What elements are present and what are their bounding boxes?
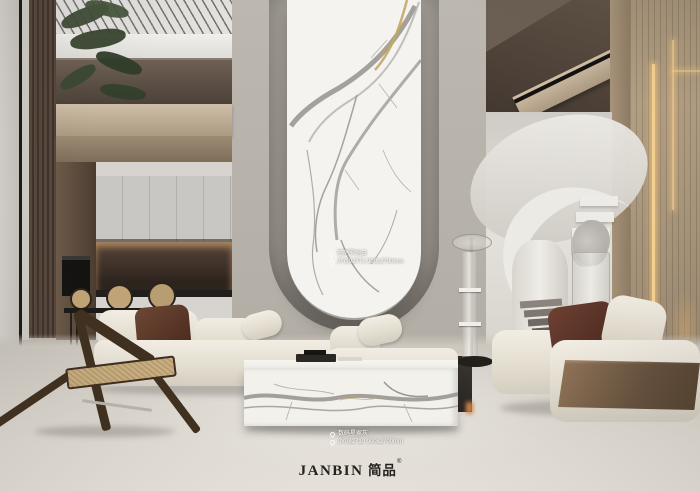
location-pin-icon (329, 430, 336, 437)
floor-lamp-ring (459, 288, 481, 292)
stair-ledge (576, 212, 614, 222)
floor-lamp-base (457, 356, 493, 367)
slab-code: JY082710 900x2700mm (338, 438, 403, 446)
location-pin-icon (328, 250, 335, 257)
marble-feature-slab: 巴萨罗纳白 JYG92771 900x2700mm (287, 0, 421, 320)
led-light-strip (672, 40, 674, 210)
marble-veining (244, 368, 458, 426)
brand-cjk: 简品 (368, 463, 397, 478)
floor-lamp-bowl-shade (452, 234, 492, 251)
table-decor (338, 357, 362, 361)
window-glass (22, 0, 29, 340)
table-tray (296, 354, 336, 362)
marble-veining (287, 0, 421, 318)
slab-name: 巴萨罗纳白 (337, 250, 367, 258)
registered-mark: ® (397, 459, 401, 465)
table-book (304, 350, 326, 355)
slab-code: JYG92771 900x2700mm (337, 258, 403, 266)
slab-info-top: 巴萨罗纳白 JYG92771 900x2700mm (329, 250, 403, 266)
slab-info-bottom: 数码星家灰 JY082710 900x2700mm (330, 430, 403, 446)
brand-latin: JANBIN (299, 463, 364, 479)
marble-coffee-table (244, 368, 458, 426)
mezzanine-wood-beam (56, 104, 232, 136)
dining-chair (106, 284, 133, 311)
floor-lamp-glass-stack (462, 252, 478, 358)
location-pin-icon (329, 438, 336, 445)
interior-showroom-photo: 巴萨罗纳白 JYG92771 900x2700mm (0, 0, 700, 491)
led-light-strip (672, 70, 700, 72)
dark-wood-slat-column (29, 0, 56, 338)
floor-lamp-ring (459, 322, 481, 326)
brand-watermark: JANBIN 简品® (0, 459, 700, 480)
wood-soffit (56, 136, 232, 162)
dining-chair (70, 288, 92, 310)
kitchen-upper-cabinets (96, 176, 232, 242)
stair-ledge (580, 196, 618, 206)
slab-name: 数码星家灰 (338, 430, 368, 438)
amber-accent-light (466, 402, 473, 414)
ottoman-wood-tray-top (558, 360, 700, 410)
location-pin-icon (328, 258, 335, 265)
